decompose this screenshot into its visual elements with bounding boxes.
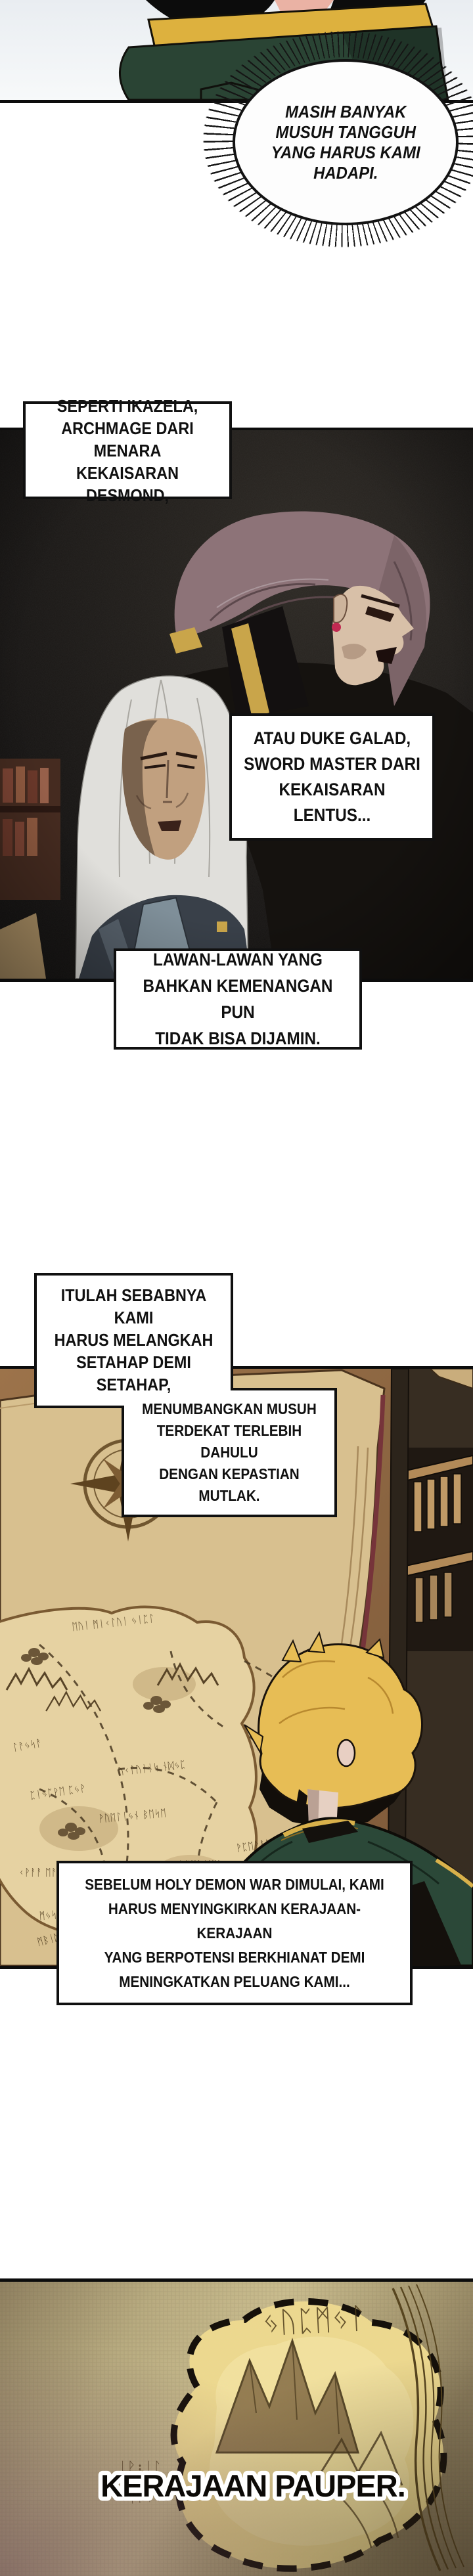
speech-bubble-text: MASIH BANYAK MUSUH TANGGUH YANG HARUS KA…: [271, 102, 420, 183]
kingdom-label: KERAJAAN PAUPER.: [101, 2468, 405, 2503]
comic-page: MASIH BANYAK MUSUH TANGGUH YANG HARUS KA…: [0, 0, 473, 2576]
caption-box-ikazela: SEPERTI IKAZELA, ARCHMAGE DARI MENARA KE…: [23, 401, 232, 499]
caption-box-menumbangkan: MENUMBANGKAN MUSUH TERDEKAT TERLEBIH DAH…: [123, 1389, 336, 1516]
speech-bubble: MASIH BANYAK MUSUH TANGGUH YANG HARUS KA…: [233, 59, 459, 225]
caption-text: ATAU DUKE GALAD, SWORD MASTER DARI KEKAI…: [242, 726, 422, 828]
caption-text: SEBELUM HOLY DEMON WAR DIMULAI, KAMI HAR…: [77, 1873, 393, 1994]
caption-box-galad: ATAU DUKE GALAD, SWORD MASTER DARI KEKAI…: [229, 713, 435, 841]
dark-panel-art: [0, 430, 473, 979]
caption-text: MENUMBANGKAN MUSUH TERDEKAT TERLEBIH DAH…: [133, 1398, 325, 1507]
caption-text: SEPERTI IKAZELA, ARCHMAGE DARI MENARA KE…: [36, 395, 219, 506]
caption-box-lawan: LAWAN-LAWAN YANG BAHKAN KEMENANGAN PUN T…: [114, 948, 362, 1050]
caption-text: LAWAN-LAWAN YANG BAHKAN KEMENANGAN PUN T…: [129, 946, 348, 1052]
caption-box-itulah: ITULAH SEBABNYA KAMI HARUS MELANGKAH SET…: [35, 1274, 232, 1406]
closeup-map-art: ᛃᚢᛈᛗᛃᛚ ᛁᚹ᛬ᛁᛚ ᛁᚹᛘᛁᛚ KERAJAAN PAUPER.: [0, 2282, 473, 2576]
caption-text: ITULAH SEBABNYA KAMI HARUS MELANGKAH SET…: [45, 1284, 222, 1396]
panel-ikazela-galad: [0, 428, 473, 982]
caption-box-sebelum: SEBELUM HOLY DEMON WAR DIMULAI, KAMI HAR…: [56, 1861, 413, 2005]
protagonist-ear: [338, 1740, 355, 1766]
panel-map-closeup: ᛃᚢᛈᛗᛃᛚ ᛁᚹ᛬ᛁᛚ ᛁᚹᛘᛁᛚ KERAJAAN PAUPER.: [0, 2278, 473, 2576]
